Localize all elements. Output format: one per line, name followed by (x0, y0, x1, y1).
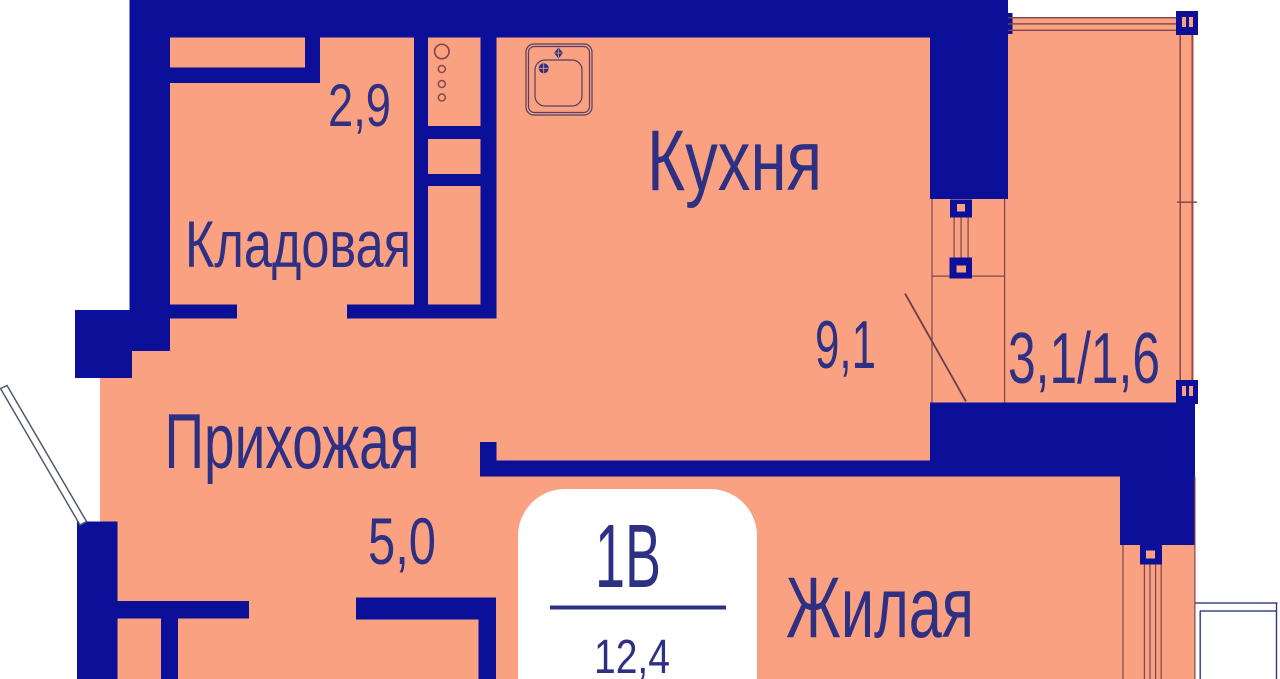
svg-text:3,1/1,6: 3,1/1,6 (1008, 319, 1160, 399)
svg-text:1В: 1В (595, 507, 661, 607)
svg-text:12,4: 12,4 (594, 631, 670, 679)
svg-text:9,1: 9,1 (815, 307, 876, 383)
svg-text:Жилая: Жилая (786, 560, 974, 656)
svg-text:Прихожая: Прихожая (165, 397, 420, 485)
svg-text:2,9: 2,9 (328, 72, 391, 139)
svg-text:Кладовая: Кладовая (185, 207, 411, 281)
svg-text:Кухня: Кухня (647, 113, 822, 209)
svg-text:5,0: 5,0 (368, 504, 436, 578)
